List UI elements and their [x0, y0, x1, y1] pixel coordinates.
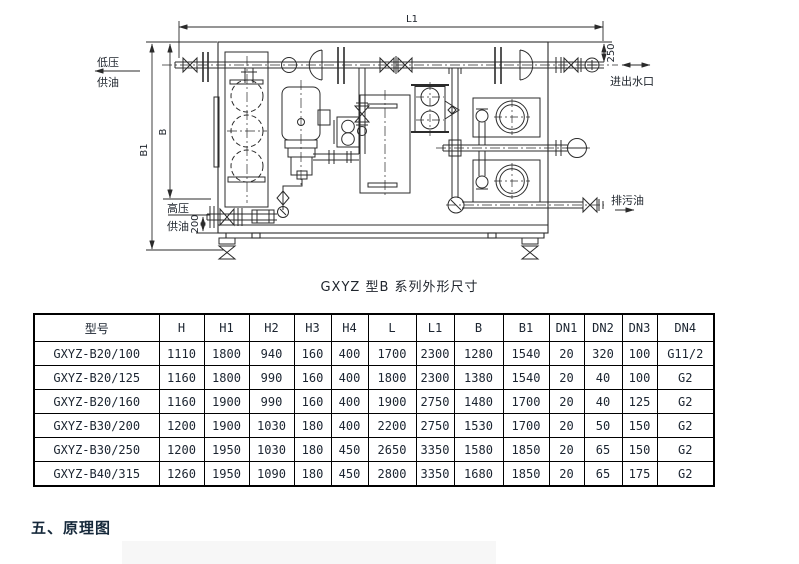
- column-header: H: [159, 314, 204, 342]
- label-low-pressure-supply: 供油: [97, 75, 119, 89]
- cell: 320: [584, 342, 622, 366]
- cell: 1030: [249, 414, 294, 438]
- table-row: GXYZ-B30/200 1200 1900 1030 180 400 2200…: [34, 414, 714, 438]
- label-water-port: 进出水口: [610, 74, 654, 88]
- cell: 1850: [503, 438, 549, 462]
- drain-line: [446, 68, 604, 213]
- cell: 2200: [368, 414, 416, 438]
- cell: 1800: [204, 342, 249, 366]
- cell: 1030: [249, 438, 294, 462]
- label-high-pressure-supply: 供油: [167, 219, 189, 233]
- cell: 100: [622, 342, 657, 366]
- table-row: GXYZ-B40/315 1260 1950 1090 180 450 2800…: [34, 462, 714, 487]
- cell: 1580: [454, 438, 503, 462]
- column-header: B: [454, 314, 503, 342]
- cell: G2: [657, 462, 714, 487]
- dim-label-l1: L1: [406, 14, 418, 25]
- cell: 180: [294, 414, 331, 438]
- model-cell: GXYZ-B20/100: [34, 342, 159, 366]
- header-row: 型号 H H1 H2 H3 H4 L L1 B B1 DN1 DN2 DN3 D…: [34, 314, 714, 342]
- cell: 40: [584, 366, 622, 390]
- cell: 100: [622, 366, 657, 390]
- cell: 1700: [368, 342, 416, 366]
- cell: 40: [584, 390, 622, 414]
- cell: 1110: [159, 342, 204, 366]
- model-cell: GXYZ-B30/200: [34, 414, 159, 438]
- dim-label-b1: B1: [139, 143, 150, 156]
- dimension-lines: [95, 21, 650, 250]
- filter-box-upper: [473, 98, 540, 137]
- cell: 1480: [454, 390, 503, 414]
- cell: 1700: [503, 390, 549, 414]
- cell: 175: [622, 462, 657, 487]
- cell: 20: [549, 462, 584, 487]
- column-header: H4: [331, 314, 368, 342]
- cell: 1950: [204, 438, 249, 462]
- cell: 1260: [159, 462, 204, 487]
- catalog-page: L1 B1 B 250 200 低压 供油 高压 供油 进出水口 排污油: [0, 0, 799, 564]
- label-high-pressure: 高压: [167, 201, 189, 215]
- dimension-table: 型号 H H1 H2 H3 H4 L L1 B B1 DN1 DN2 DN3 D…: [33, 313, 715, 487]
- top-pipe: [162, 47, 618, 84]
- cell: 20: [549, 366, 584, 390]
- cell: 1200: [159, 414, 204, 438]
- column-header: H3: [294, 314, 331, 342]
- center-vertical-pipe: [355, 68, 369, 154]
- cell: G2: [657, 414, 714, 438]
- cell: 1380: [454, 366, 503, 390]
- model-cell: GXYZ-B20/160: [34, 390, 159, 414]
- column-header: DN2: [584, 314, 622, 342]
- dim-label-b: B: [158, 128, 169, 135]
- figure-caption: GXYZ 型B 系列外形尺寸: [0, 276, 799, 295]
- table-row: GXYZ-B20/160 1160 1900 990 160 400 1900 …: [34, 390, 714, 414]
- cell: 1680: [454, 462, 503, 487]
- model-cell: GXYZ-B40/315: [34, 462, 159, 487]
- column-header-model: 型号: [34, 314, 159, 342]
- cross-pipe: [436, 109, 592, 189]
- cell: 400: [331, 414, 368, 438]
- cell: 160: [294, 390, 331, 414]
- cell: 2300: [416, 366, 454, 390]
- cell: G2: [657, 366, 714, 390]
- cell: 450: [331, 462, 368, 487]
- cell: 450: [331, 438, 368, 462]
- cell: G2: [657, 390, 714, 414]
- column-header: DN1: [549, 314, 584, 342]
- cell: 1800: [204, 366, 249, 390]
- section-heading: 五、原理图: [31, 517, 111, 538]
- label-drain-oil: 排污油: [611, 193, 644, 207]
- cell: 65: [584, 438, 622, 462]
- cell: 1800: [368, 366, 416, 390]
- cell: 1950: [204, 462, 249, 487]
- label-low-pressure: 低压: [97, 56, 119, 69]
- cell: 1160: [159, 390, 204, 414]
- column-header: H1: [204, 314, 249, 342]
- cell: 50: [584, 414, 622, 438]
- cell: 20: [549, 438, 584, 462]
- cell: 2800: [368, 462, 416, 487]
- cell: 1090: [249, 462, 294, 487]
- cell: 160: [294, 342, 331, 366]
- cell: 150: [622, 414, 657, 438]
- cell: 1900: [204, 414, 249, 438]
- dim-label-250: 250: [606, 43, 617, 62]
- cell: 990: [249, 366, 294, 390]
- cell: 940: [249, 342, 294, 366]
- leveling-feet: [219, 238, 538, 259]
- cell: 2650: [368, 438, 416, 462]
- cell: G2: [657, 438, 714, 462]
- column-header: B1: [503, 314, 549, 342]
- cell: 400: [331, 366, 368, 390]
- table-row: GXYZ-B30/250 1200 1950 1030 180 450 2650…: [34, 438, 714, 462]
- cell: 1700: [503, 414, 549, 438]
- outline-drawing: L1 B1 B 250 200 低压 供油 高压 供油 进出水口 排污油: [0, 0, 799, 272]
- model-cell: GXYZ-B20/125: [34, 366, 159, 390]
- table-row: GXYZ-B20/125 1160 1800 990 160 400 1800 …: [34, 366, 714, 390]
- cell: 400: [331, 342, 368, 366]
- cell: 1160: [159, 366, 204, 390]
- cell: 65: [584, 462, 622, 487]
- cell: 1280: [454, 342, 503, 366]
- column-header: DN4: [657, 314, 714, 342]
- valve-icon: [355, 106, 369, 122]
- column-header: L: [368, 314, 416, 342]
- cell: 2750: [416, 390, 454, 414]
- cell: 125: [622, 390, 657, 414]
- cell: 180: [294, 462, 331, 487]
- valve-icon: [220, 209, 234, 225]
- cell: G11/2: [657, 342, 714, 366]
- high-pressure-pipe: [207, 179, 302, 228]
- column-header: DN3: [622, 314, 657, 342]
- model-cell: GXYZ-B30/250: [34, 438, 159, 462]
- cell: 2750: [416, 414, 454, 438]
- cell: 3350: [416, 462, 454, 487]
- cell: 20: [549, 390, 584, 414]
- oil-tank: [214, 52, 268, 207]
- cell: 150: [622, 438, 657, 462]
- table-row: GXYZ-B20/100 1110 1800 940 160 400 1700 …: [34, 342, 714, 366]
- cell: 1200: [159, 438, 204, 462]
- column-header: L1: [416, 314, 454, 342]
- cell: 20: [549, 342, 584, 366]
- cell: 1540: [503, 342, 549, 366]
- center-frame-plate: [360, 90, 410, 198]
- cell: 1900: [204, 390, 249, 414]
- next-figure-edge: [122, 541, 496, 564]
- cell: 400: [331, 390, 368, 414]
- cell: 160: [294, 366, 331, 390]
- cell: 2300: [416, 342, 454, 366]
- cell: 1540: [503, 366, 549, 390]
- dim-label-200: 200: [190, 214, 201, 233]
- cell: 20: [549, 414, 584, 438]
- cell: 990: [249, 390, 294, 414]
- cell: 1850: [503, 462, 549, 487]
- cell: 3350: [416, 438, 454, 462]
- cell: 1530: [454, 414, 503, 438]
- column-header: H2: [249, 314, 294, 342]
- filter-box-lower: [473, 160, 540, 202]
- cell: 1900: [368, 390, 416, 414]
- cell: 180: [294, 438, 331, 462]
